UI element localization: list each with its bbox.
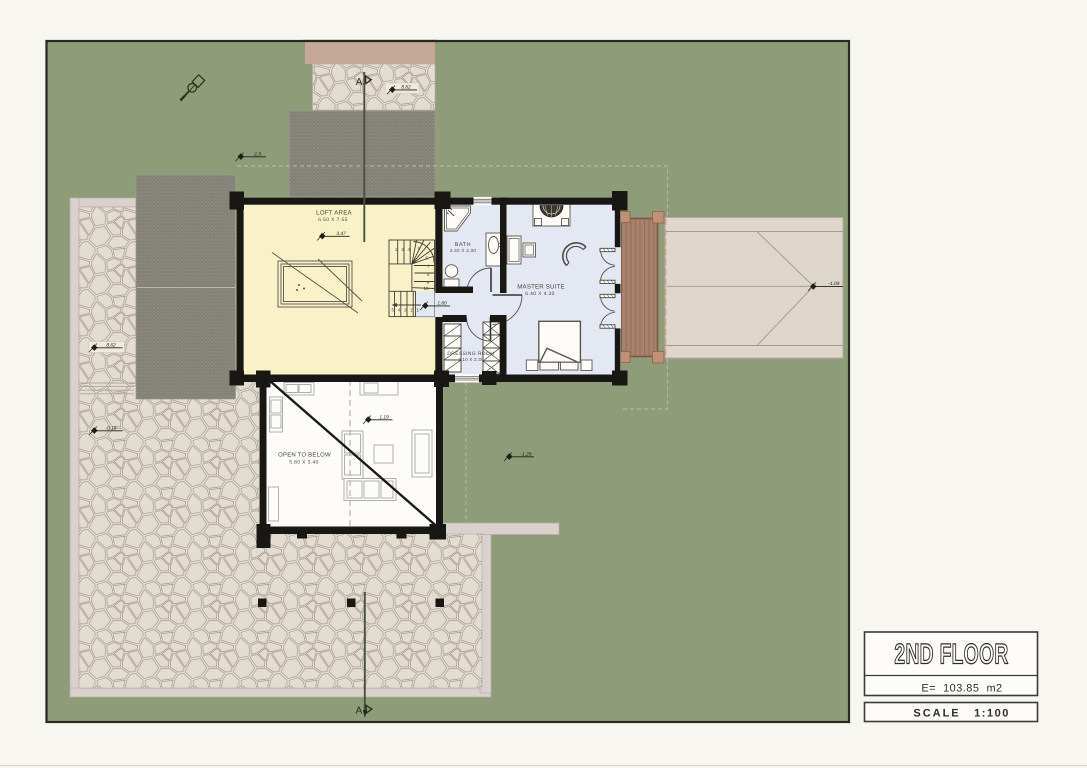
svg-text:8.62: 8.62 — [401, 84, 411, 90]
svg-text:5.80 X 3.40: 5.80 X 3.40 — [289, 460, 318, 466]
svg-text:3.30 X 2.30: 3.30 X 2.30 — [450, 248, 477, 253]
svg-text:8.62: 8.62 — [106, 342, 116, 348]
svg-text:6.40 X 4.30: 6.40 X 4.30 — [525, 291, 554, 297]
svg-text:10: 10 — [424, 286, 430, 291]
svg-text:-1.09: -1.09 — [829, 281, 840, 287]
svg-text:A: A — [356, 706, 363, 717]
svg-text:1:100: 1:100 — [974, 708, 1010, 720]
svg-text:SCALE: SCALE — [913, 708, 960, 720]
svg-text:3.10 X 2.30: 3.10 X 2.30 — [458, 357, 484, 362]
svg-text:MASTER SUITE: MASTER SUITE — [517, 284, 564, 291]
svg-text:-1.9: -1.9 — [253, 151, 262, 157]
svg-text:6.50 X 7.55: 6.50 X 7.55 — [318, 217, 347, 223]
svg-text:LOFT AREA: LOFT AREA — [316, 210, 352, 217]
svg-text:OPEN TO BELOW: OPEN TO BELOW — [278, 452, 331, 459]
svg-text:E= 103.85 m2: E= 103.85 m2 — [921, 683, 1002, 695]
svg-text:3.47: 3.47 — [336, 231, 346, 237]
svg-text:-1.29: -1.29 — [521, 451, 532, 457]
svg-text:2ND FLOOR: 2ND FLOOR — [894, 639, 1008, 671]
svg-text:-0.18: -0.18 — [106, 425, 117, 431]
svg-text:A: A — [356, 77, 363, 88]
svg-text:1.60: 1.60 — [437, 300, 447, 306]
svg-text:1.19: 1.19 — [379, 414, 389, 420]
